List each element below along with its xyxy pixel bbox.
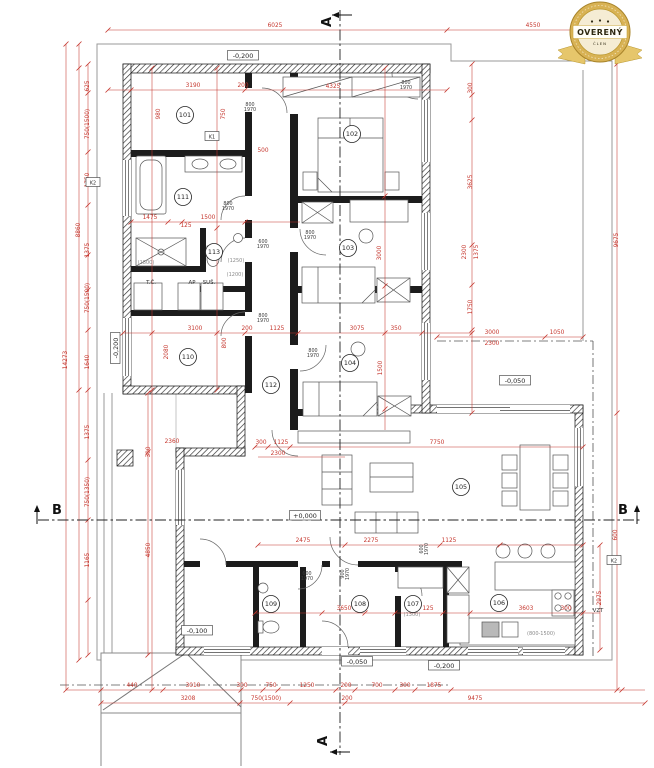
dimension-label: 4850: [146, 542, 152, 557]
k-reference: K2: [607, 556, 621, 565]
k-reference-text: K2: [90, 181, 96, 187]
room-number: 103: [340, 240, 357, 257]
dimension-label: 6025: [268, 23, 283, 29]
dimension-label: 1375: [474, 244, 480, 259]
bathtub: [136, 156, 166, 214]
level-label: -0,050: [500, 376, 531, 386]
level-text: -0,050: [505, 377, 526, 385]
wardrobe-3: [377, 278, 410, 302]
dimension-label: 750(1500): [251, 696, 281, 702]
dimension-label: 1375: [85, 242, 91, 257]
dimension-label: 9675: [614, 232, 620, 247]
dimension-label: 3190: [186, 83, 201, 89]
laundry-units: [134, 283, 223, 310]
dimension-label: 2300: [462, 244, 468, 259]
room-number-text: 105: [455, 483, 467, 491]
wardrobe-2: [302, 202, 333, 223]
window-size-label: (1250): [228, 258, 245, 264]
dimension-label: 2080: [164, 344, 170, 359]
dimension-label: 300: [146, 446, 152, 457]
technical-label: SUŠ.: [203, 279, 216, 286]
room-number: 108: [352, 596, 369, 613]
door-size-label: 8001970: [304, 230, 316, 241]
dimension-label: 300: [560, 606, 571, 612]
dimension-label: 350: [390, 326, 401, 332]
level-text: -0,200: [434, 662, 455, 670]
dimension-label: 125: [180, 223, 191, 229]
level-text: -0,050: [347, 658, 368, 666]
dimension-label: 2475: [296, 538, 311, 544]
dimension-label: 300: [236, 683, 247, 689]
door-size-label: 6001970: [419, 543, 430, 555]
door-size-label: 6001970: [257, 239, 269, 250]
window-size-label: (800-1500): [527, 631, 555, 637]
dimension-label: 800: [222, 337, 228, 348]
dimension-label: 1475: [143, 215, 158, 221]
k-reference: K1: [205, 132, 219, 141]
dimension-label: 1500: [378, 360, 384, 375]
k-reference-text: K1: [209, 135, 215, 141]
dimension-label: 14273: [63, 350, 69, 369]
room-number-text: 104: [344, 359, 356, 367]
dimension-label: 2275: [364, 538, 379, 544]
dimension-label: 2360: [165, 439, 180, 445]
dimension-label: 3625: [468, 174, 474, 189]
level-text: -0,200: [112, 338, 120, 359]
dimension-label: 1050: [550, 330, 565, 336]
dimension-label: 200: [341, 696, 352, 702]
dimension-label: 600: [613, 529, 619, 540]
dimension-label: 2300: [271, 451, 286, 457]
dimension-label: 3650: [337, 606, 352, 612]
dimension-label: 980: [156, 108, 162, 119]
dimension-label: 7750: [430, 440, 445, 446]
badge-subtitle: ČLEN: [593, 41, 607, 46]
dimension-label: 1125: [270, 326, 285, 332]
dimension-label: 3000: [377, 245, 383, 260]
dimension-label: 1640: [85, 354, 91, 369]
floor-plan-drawing: A A B B 60254550319020098075050043251475…: [0, 0, 654, 768]
section-a-bottom: A: [316, 736, 331, 746]
dimension-label: 3075: [350, 326, 365, 332]
dimension-label: 1750: [468, 299, 474, 314]
dimension-label: 1165: [85, 552, 91, 567]
dimension-label: 3010: [186, 683, 201, 689]
stove: [552, 590, 574, 616]
room-number: 104: [342, 355, 359, 372]
bed-single: [302, 267, 375, 303]
room-number: 109: [263, 596, 280, 613]
room-number: 111: [175, 189, 192, 206]
level-label: -0,200: [228, 51, 259, 61]
room-number-text: 108: [354, 600, 366, 608]
badge-title: OVERENÝ: [577, 26, 623, 37]
room-number-text: 106: [493, 599, 505, 607]
dimension-label: 1125: [442, 538, 457, 544]
room-number: 110: [180, 349, 197, 366]
dimension-label: 4325: [326, 84, 341, 90]
dimension-label: 440: [126, 683, 137, 689]
window-size-label: (1800): [138, 260, 155, 266]
section-a-top: A: [320, 17, 335, 27]
dimension-label: 1875: [427, 683, 442, 689]
dimension-label: 3208: [181, 696, 196, 702]
vanity: [185, 156, 242, 172]
k-reference: K2: [86, 178, 100, 187]
dining-table: [502, 445, 568, 510]
dimension-label: 750(1350): [85, 477, 91, 507]
technical-label: T.Č.: [145, 279, 156, 286]
door-size-label: 8001970: [257, 313, 269, 324]
tv-board: [298, 431, 410, 443]
dimension-label: 1250: [300, 683, 315, 689]
dimension-label: 200: [241, 326, 252, 332]
section-b-right: B: [618, 503, 628, 518]
level-label: +0,000: [290, 511, 321, 521]
level-label: -0,200: [429, 661, 460, 671]
dimension-label: 625: [85, 80, 91, 91]
room-number-text: 101: [179, 111, 191, 119]
technical-label: AP: [189, 280, 197, 286]
room-number-text: 103: [342, 244, 354, 252]
room-number-text: 102: [346, 130, 358, 138]
floor-plan-page: A A B B 60254550319020098075050043251475…: [0, 0, 654, 768]
dimension-label: 2975: [597, 590, 603, 605]
dimension-label: 700: [371, 683, 382, 689]
dimension-label: 300: [468, 82, 474, 93]
room-number-text: 113: [208, 248, 220, 256]
door-size-label: 8001970: [222, 201, 234, 212]
dimension-label: 750: [265, 683, 276, 689]
k-reference-text: K2: [611, 559, 617, 565]
level-text: -0,200: [233, 52, 254, 60]
section-b-left: B: [52, 503, 62, 518]
kitchen-counter: [460, 618, 575, 645]
room-number: 102: [344, 126, 361, 143]
level-label: -0,200: [111, 333, 121, 364]
dimension-label: 1125: [274, 440, 289, 446]
dimension-label: 1500: [201, 215, 216, 221]
sofa-2: [355, 512, 418, 533]
level-label: -0,050: [342, 657, 373, 667]
dimension-label: 200: [237, 83, 248, 89]
dimension-label: 4550: [526, 23, 541, 29]
door-size-label: 8001970: [307, 348, 319, 359]
dimension-label: 125: [422, 606, 433, 612]
room-number: 113: [206, 244, 223, 261]
dimension-label: 750: [221, 108, 227, 119]
door-size-label: 6001970: [301, 571, 313, 582]
certification-badge: OVERENÝ ČLEN: [558, 2, 642, 64]
dimension-label: 750(1500): [85, 283, 91, 313]
coffee-table: [370, 463, 413, 492]
wardrobe-4: [378, 396, 411, 416]
window-size-label: (1200): [227, 272, 244, 278]
level-text: -0,100: [187, 627, 208, 635]
room-number-text: 112: [265, 381, 277, 389]
dimension-label: 300: [399, 683, 410, 689]
kitchen-island: [495, 544, 575, 590]
room-number-text: 109: [265, 600, 277, 608]
door-size-label: 9001970: [340, 568, 351, 580]
door-size-label: 8001970: [400, 80, 412, 91]
technical-label: VZT: [593, 608, 604, 614]
dimension-label: 3603: [519, 606, 534, 612]
desk: [350, 200, 408, 243]
dimension-label: 9475: [468, 696, 483, 702]
room-number-text: 111: [177, 193, 189, 201]
room-number: 101: [177, 107, 194, 124]
door-size-label: 8001970: [244, 102, 256, 113]
room-number: 112: [263, 377, 280, 394]
room-number: 105: [453, 479, 470, 496]
dimension-label: 2300: [485, 341, 500, 347]
porch-gable: [101, 653, 241, 766]
dimension-label: 3000: [485, 330, 500, 336]
dimension-label: 200: [340, 683, 351, 689]
dimension-label: 1375: [85, 424, 91, 439]
dimension-label: 8860: [76, 222, 82, 237]
room-number: 107: [405, 596, 422, 613]
room-number-text: 110: [182, 353, 194, 361]
dimension-label: 300: [255, 440, 266, 446]
dimension-label: 750(1500): [85, 109, 91, 139]
dimension-label: 3100: [188, 326, 203, 332]
level-text: +0,000: [293, 512, 317, 520]
room-number-text: 107: [407, 600, 419, 608]
room-number: 106: [491, 595, 508, 612]
sofa: [322, 455, 352, 505]
level-label: -0,100: [182, 626, 213, 636]
window-size-label: (1300): [404, 612, 421, 618]
dimension-label: 500: [257, 148, 268, 154]
